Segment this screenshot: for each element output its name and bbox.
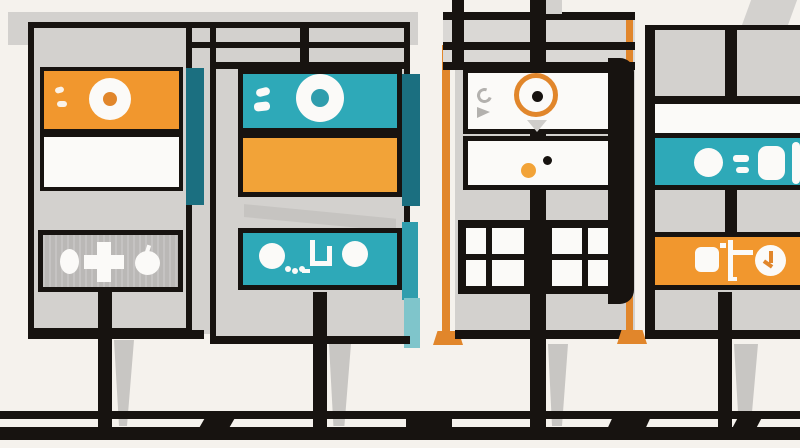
panel-4-white-strip xyxy=(655,104,800,133)
panel-3-bottom-edge xyxy=(455,330,635,339)
panel-2-side-strip-mid xyxy=(402,222,418,300)
grid-cell xyxy=(552,260,582,286)
rounded-square-icon xyxy=(695,247,719,272)
panel-2-side-strip-top xyxy=(402,74,420,206)
circle-icon xyxy=(342,241,368,267)
panel-2-header-divider xyxy=(300,22,309,69)
panel-1-bottom-edge xyxy=(28,330,204,339)
lens-center-dot xyxy=(311,89,329,107)
panel-4-header-line xyxy=(645,96,800,104)
branch-bracket-icon xyxy=(728,240,733,277)
branch-bracket-icon xyxy=(728,277,737,281)
ellipsis-dots-icon xyxy=(285,266,291,272)
panel-3-top-post xyxy=(452,0,464,70)
apple-icon xyxy=(135,251,160,275)
panel-3-center-post xyxy=(530,0,546,428)
panel-2-header-line xyxy=(210,42,410,48)
branch-bracket-icon xyxy=(728,250,753,255)
oval-dot-icon xyxy=(60,249,79,274)
panel-2-header-line xyxy=(210,62,410,69)
circle-icon xyxy=(694,148,723,177)
lens-center-dot xyxy=(103,92,117,106)
bracket-icon xyxy=(327,246,332,266)
tick-marks-icon xyxy=(57,101,67,107)
orange-pole-right-foot xyxy=(617,330,647,344)
plus-icon xyxy=(97,242,111,282)
illustration-stage xyxy=(0,0,800,448)
circle-icon xyxy=(259,243,285,269)
panel-1-side-strip xyxy=(186,68,204,205)
panel-3-post-shadow-top xyxy=(546,0,562,14)
panel-3-white-dots-box xyxy=(463,136,613,190)
grid-cell xyxy=(552,228,582,254)
black-dot-icon xyxy=(543,156,552,165)
grid-cell xyxy=(466,228,486,254)
orange-dot-icon xyxy=(521,163,536,178)
ellipsis-dots-icon xyxy=(292,268,298,274)
equals-dash-icon xyxy=(733,155,749,162)
clock-hand xyxy=(769,251,773,263)
panel-4-mid-divider xyxy=(725,188,737,234)
background-gray-corner xyxy=(741,0,797,28)
panel-4-post xyxy=(718,292,732,428)
orange-pole-left xyxy=(442,45,450,337)
branch-bracket-icon xyxy=(720,243,726,248)
panel-1-white-blank-box xyxy=(40,133,183,191)
grid-cell xyxy=(492,260,524,286)
equals-dash-icon xyxy=(736,167,749,173)
panel-2-bottom-edge xyxy=(210,336,410,344)
grid-cell xyxy=(492,228,524,254)
ground-rail-thick xyxy=(0,427,800,440)
ground-rail-thin xyxy=(0,411,800,419)
panel-4-header-divider xyxy=(725,25,737,103)
rounded-rect-icon xyxy=(758,146,785,180)
target-center-dot xyxy=(532,91,543,102)
edge-bar-icon xyxy=(792,142,800,184)
bracket-icon xyxy=(302,269,310,273)
panel-2-orange-blank-box xyxy=(238,133,402,197)
panel-1-post xyxy=(98,292,112,428)
grid-cell xyxy=(466,260,486,286)
panel-3-heavy-side-bar xyxy=(608,58,634,304)
panel-2-post xyxy=(313,292,327,428)
